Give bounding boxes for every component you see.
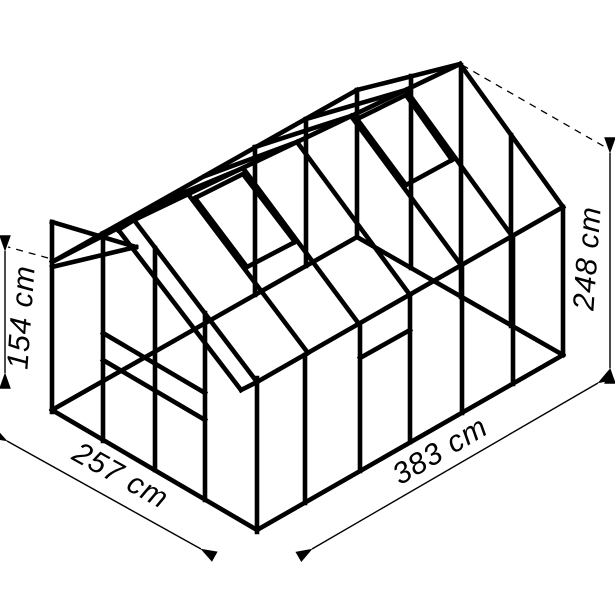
side-window-rail <box>360 330 410 358</box>
left-slope-bar <box>103 194 188 233</box>
dimension-line <box>312 383 598 549</box>
dimension-diagram: 154 cm 248 cm 257 cm 383 cm <box>0 0 615 615</box>
left-slope-bar <box>205 142 297 176</box>
dimension-label-wall-height: 154 cm <box>1 264 41 370</box>
dimension-label-side-length: 383 cm <box>387 410 494 491</box>
dimension-ridge-height: 248 cm <box>462 65 610 368</box>
dimension-label-ridge-height: 248 cm <box>567 205 607 312</box>
dimension-front-width: 257 cm <box>7 435 201 549</box>
dimension-side-wall-height: 154 cm <box>1 247 48 373</box>
extension-line <box>462 65 605 147</box>
dimension-side-length: 383 cm <box>312 383 598 549</box>
extension-line <box>8 247 48 258</box>
roof-overhang-edge <box>241 382 257 390</box>
greenhouse-wireframe: 154 cm 248 cm 257 cm 383 cm <box>0 0 615 615</box>
roof-vent-window <box>357 119 406 185</box>
roof-vent-window <box>195 198 247 267</box>
roof-vent-window <box>243 174 295 242</box>
frame-line <box>134 220 257 382</box>
